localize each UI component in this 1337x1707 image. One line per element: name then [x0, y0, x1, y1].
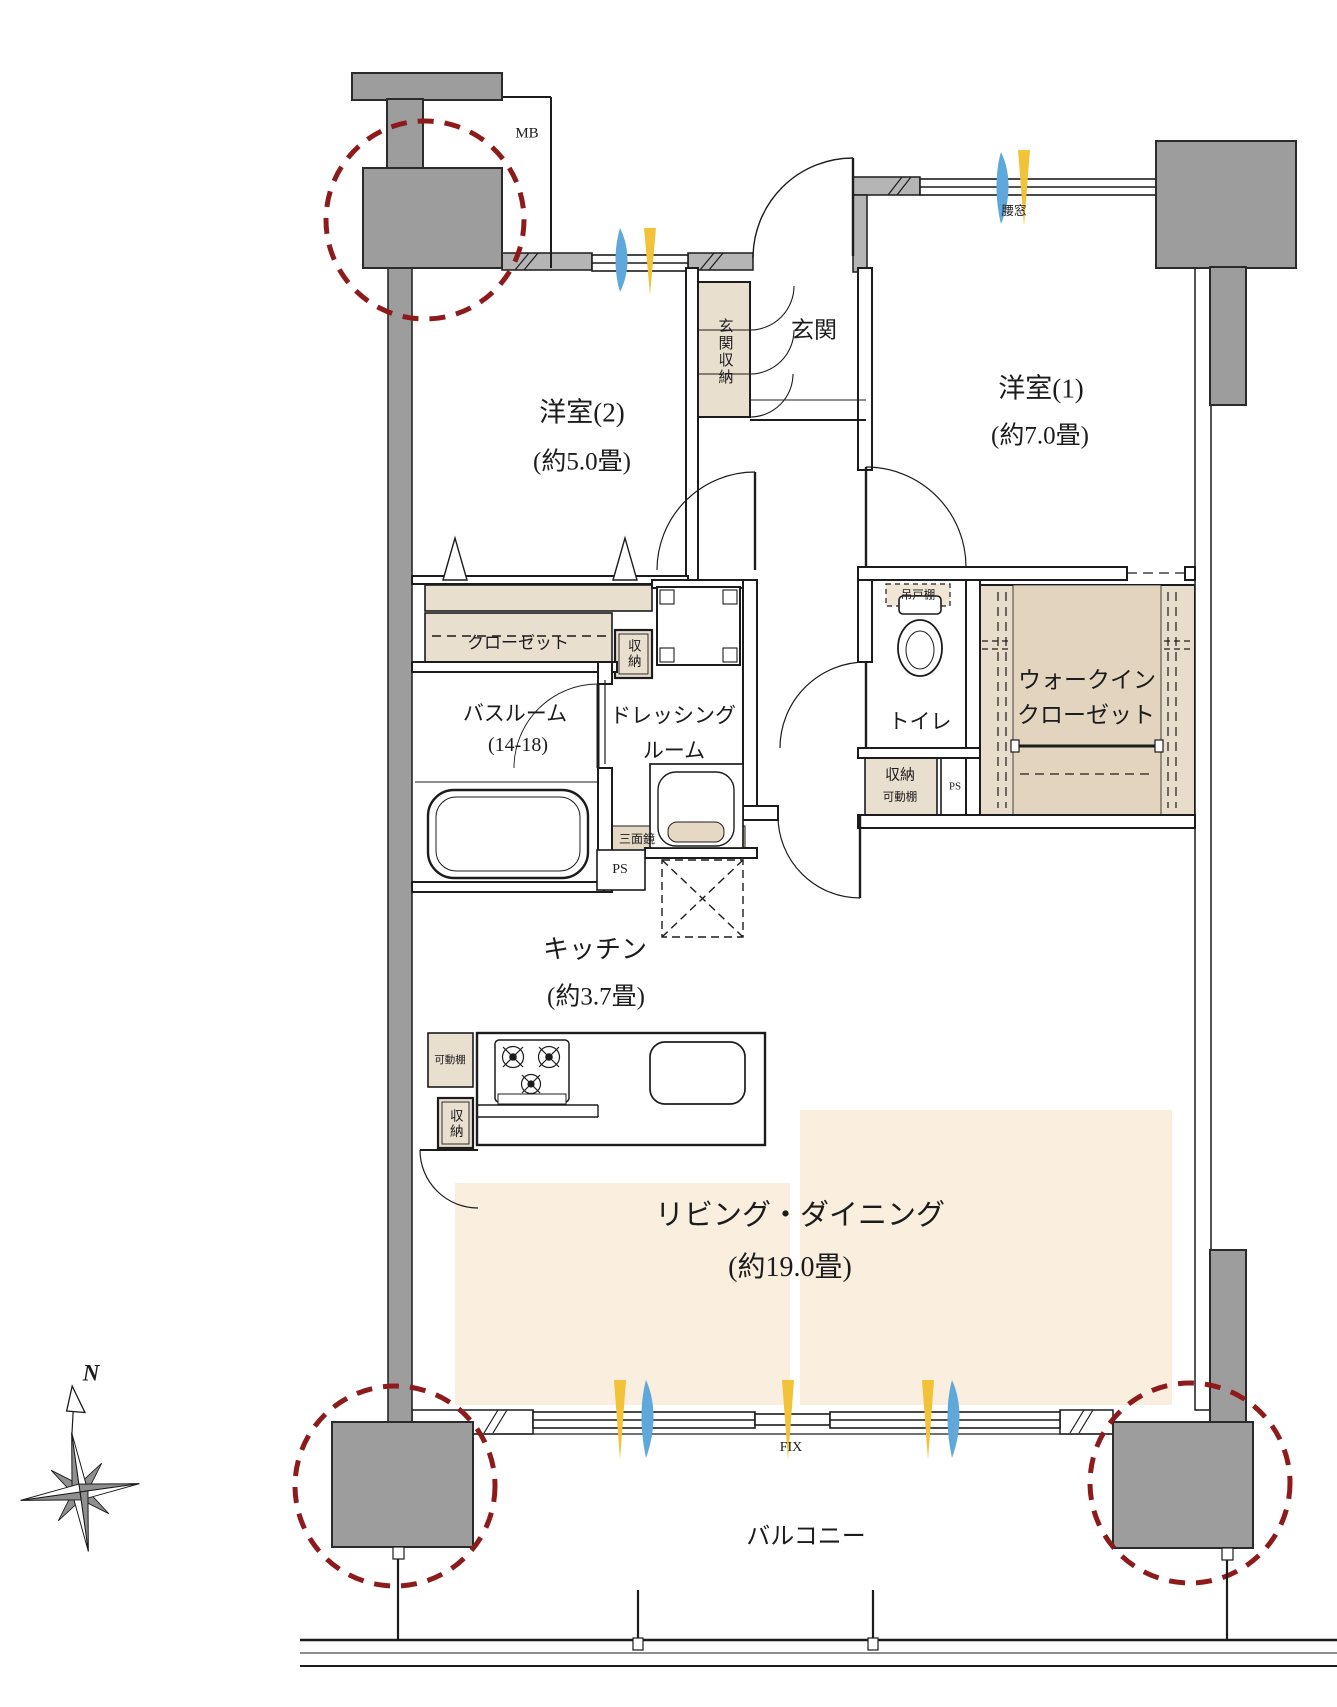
room1-name: 洋室(1)	[998, 376, 1083, 403]
living-size: (約19.0畳)	[728, 1254, 852, 1282]
pillar-top-left	[352, 73, 502, 268]
washbasin	[650, 764, 743, 848]
kitchen-size: (約3.7畳)	[547, 985, 645, 1010]
stove	[495, 1040, 569, 1104]
room1-door	[866, 467, 966, 567]
front-door	[753, 158, 853, 258]
entrance-storage-label: 玄関収納	[717, 318, 732, 386]
closet-folding-doors	[443, 538, 637, 580]
ps-bath-label: PS	[612, 863, 628, 877]
room2-name: 洋室(2)	[539, 400, 624, 427]
living-name: リビング・ダイニング	[655, 1202, 945, 1231]
dressing-room-label-2: ルーム	[643, 741, 705, 762]
washing-machine-pan	[657, 587, 740, 665]
hall-storage-label: 収納	[626, 639, 640, 670]
floor-plan: MB 洋室(2) (約5.0畳) 玄関収納 玄関 洋室(1) (約7.0畳) 腰…	[0, 0, 1337, 1707]
closet-label: クローゼット	[467, 635, 569, 652]
kitchen-storage-label: 収納	[448, 1109, 462, 1140]
right-outer-wall	[1195, 197, 1211, 1410]
toilet-door	[780, 662, 866, 748]
pillar-top-right	[1156, 141, 1296, 405]
left-outer-wall	[388, 268, 412, 1422]
pillar-bottom-left	[332, 1422, 473, 1547]
entrance-storage-doors	[750, 286, 794, 417]
mirror-label: 三面鏡	[619, 833, 655, 845]
hanging-cupboard-label: 吊戸棚	[901, 590, 936, 602]
ps-toilet-label: PS	[949, 782, 961, 793]
room2-door	[657, 472, 755, 570]
shelf-storage-label-2: 可動棚	[883, 792, 918, 804]
balcony-label: バルコニー	[746, 1525, 866, 1549]
living-door	[778, 816, 860, 898]
compass-arrowhead	[63, 1385, 85, 1415]
dressing-room-label-1: ドレッシング	[610, 706, 736, 727]
kitchen-name: キッチン	[543, 937, 647, 963]
shelf-storage-box	[865, 755, 937, 817]
entrance-label: 玄関	[791, 319, 837, 342]
toilet-label: トイレ	[889, 712, 952, 733]
room2-size: (約5.0畳)	[533, 450, 631, 475]
bathroom-name: バスルーム	[463, 704, 567, 725]
compass-rose	[6, 1379, 148, 1560]
wic-label-2: クローゼット	[1017, 704, 1155, 727]
closet-shelf	[425, 585, 652, 611]
movable-shelf-label: 可動棚	[434, 1056, 466, 1067]
bathtub	[415, 782, 597, 878]
meter-box-label: MB	[515, 127, 538, 142]
fix-window-label: FIX	[780, 1441, 803, 1455]
shelf-storage-label-1: 収納	[885, 769, 915, 784]
entrance-step	[750, 400, 866, 420]
refrigerator-space	[662, 860, 743, 937]
waist-window-label: 腰窓	[1001, 205, 1026, 218]
wic-label-1: ウォークイン	[1018, 669, 1156, 692]
toilet-fixture	[898, 596, 942, 676]
window-fix	[755, 1414, 830, 1425]
room1-size: (約7.0畳)	[991, 424, 1089, 449]
kitchen-sink	[650, 1042, 745, 1104]
meter-box	[502, 97, 551, 268]
bathroom-size: (14-18)	[488, 735, 548, 755]
drain-pipes	[393, 1547, 1233, 1640]
floor-plan-drawing	[0, 0, 1337, 1707]
compass-north-label: N	[83, 1362, 100, 1385]
